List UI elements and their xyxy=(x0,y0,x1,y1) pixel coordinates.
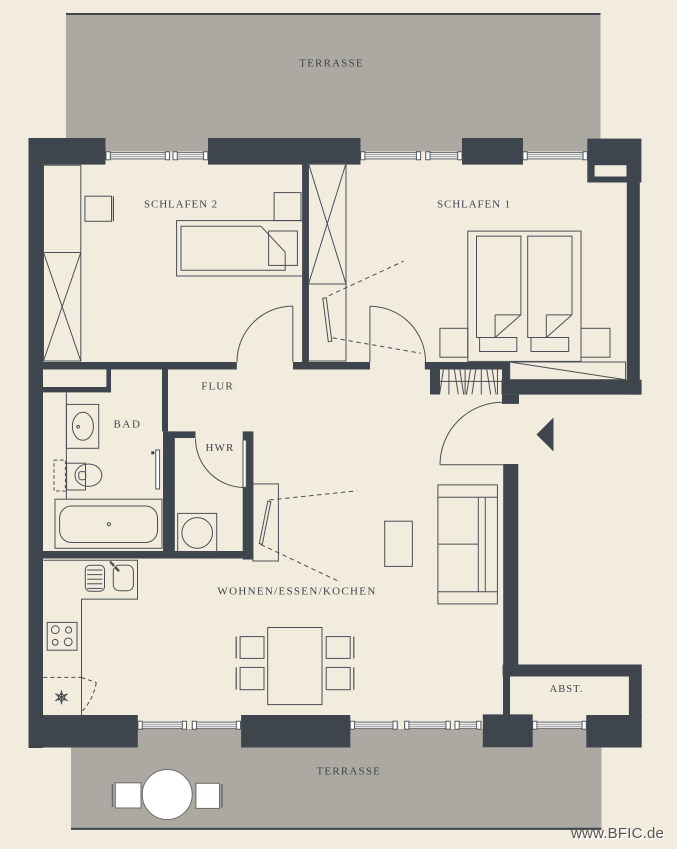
svg-text:TERRASSE: TERRASSE xyxy=(316,766,381,778)
svg-text:WOHNEN/ESSEN/KOCHEN: WOHNEN/ESSEN/KOCHEN xyxy=(217,586,376,598)
svg-text:SCHLAFEN 2: SCHLAFEN 2 xyxy=(144,199,218,211)
svg-text:TERRASSE: TERRASSE xyxy=(299,58,364,70)
svg-text:BAD: BAD xyxy=(113,419,141,431)
svg-text:FLUR: FLUR xyxy=(201,380,234,392)
svg-text:SCHLAFEN 1: SCHLAFEN 1 xyxy=(437,199,511,211)
svg-text:ABST.: ABST. xyxy=(550,684,584,695)
svg-text:HWR: HWR xyxy=(206,442,235,454)
